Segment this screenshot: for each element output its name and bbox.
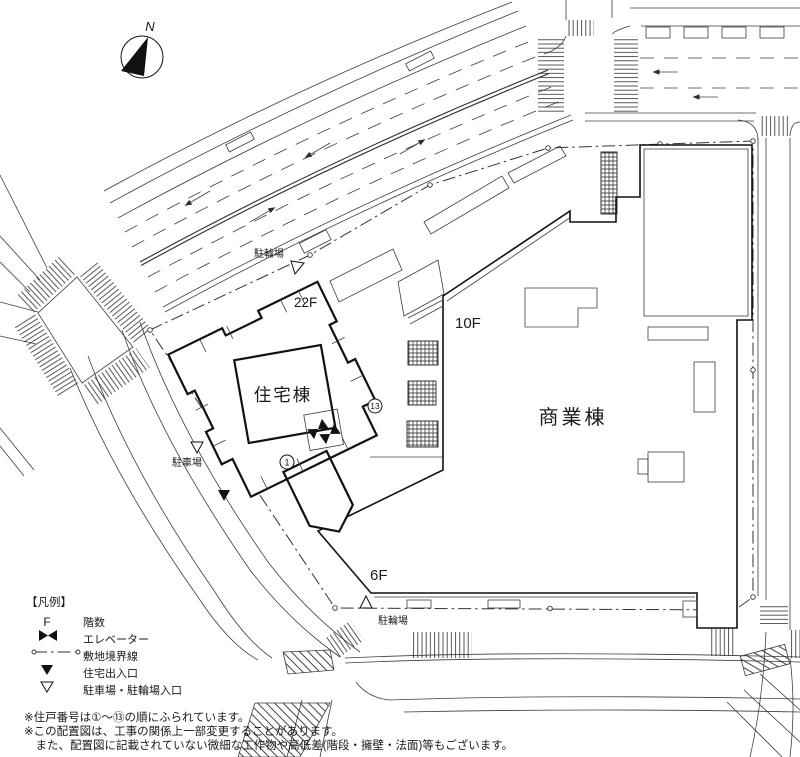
residential-floors-label: 22F <box>294 295 317 310</box>
lane-arrow <box>250 208 274 222</box>
north-arrow-icon: N <box>121 19 163 78</box>
svg-text:駐車場・駐輪場入口: 駐車場・駐輪場入口 <box>83 683 182 697</box>
site-plan-page: 1 13 22F 住宅棟 10F 商業棟 6F 駐輪場 駐輪場 駐車場 N 【凡… <box>0 0 800 757</box>
filled-triangle-icon <box>41 665 53 675</box>
roof-structure <box>683 601 697 617</box>
sidewalk-planter <box>407 600 431 608</box>
bicycle-parking-north-label: 駐輪場 <box>254 247 284 260</box>
sidewalk-bump <box>406 51 435 71</box>
sidewalk-planter <box>488 600 520 608</box>
svg-text:13: 13 <box>370 401 380 411</box>
crosswalk-hatch <box>788 630 800 658</box>
parking-stall <box>684 27 708 38</box>
legend: 【凡例】 F 階数 エレベーター 敷地境界線 住宅出入口 駐車場・駐輪場入口 <box>26 595 182 697</box>
svg-text:エレベーター: エレベーター <box>83 633 149 646</box>
parking-stall <box>722 27 746 38</box>
crosswalk-hatch <box>760 604 788 624</box>
legend-row-elevator: エレベーター <box>39 630 149 646</box>
site-plan-drawing: 1 13 22F 住宅棟 10F 商業棟 6F 駐輪場 駐輪場 駐車場 N 【凡… <box>0 0 800 757</box>
lane-arrow <box>400 140 424 154</box>
svg-text:1: 1 <box>284 458 289 468</box>
residential-entrance-icon <box>218 490 230 501</box>
west-intersection <box>0 175 153 406</box>
note-line-2: ※この配置図は、工事の関係上一部変更することがあります。 <box>24 724 343 738</box>
bicycle-entrance-north-icon <box>291 261 304 274</box>
crosswalk-hatch <box>710 628 734 656</box>
unit-1-marker: 1 <box>280 455 294 469</box>
svg-text:敷地境界線: 敷地境界線 <box>83 649 138 663</box>
lane-arrow <box>306 143 330 157</box>
parking-stall <box>646 27 670 38</box>
commercial-outline <box>318 145 752 628</box>
legend-row-boundary: 敷地境界線 <box>32 649 138 663</box>
floors-symbol: F <box>43 615 50 629</box>
northeast-road <box>538 0 800 121</box>
bicycle-entrance-south-icon <box>360 596 372 608</box>
commercial-building <box>318 145 752 628</box>
svg-text:N: N <box>145 19 155 34</box>
legend-row-floors: F 階数 <box>43 615 105 629</box>
legend-row-residential-entrance: 住宅出入口 <box>41 665 138 680</box>
parking-stall <box>760 27 784 38</box>
svg-text:階数: 階数 <box>83 615 105 629</box>
commercial-floors-low-label: 6F <box>370 567 388 584</box>
residential-name-label: 住宅棟 <box>254 385 313 405</box>
commercial-name-label: 商業棟 <box>539 406 608 429</box>
hatched-island <box>283 650 334 674</box>
legend-row-parking-entrance: 駐車場・駐輪場入口 <box>41 682 182 697</box>
bicycle-shelter <box>299 230 331 253</box>
elevator-icon <box>39 630 57 641</box>
legend-title: 【凡例】 <box>26 595 72 609</box>
note-line-3: また、配置図に記載されていない微細な工作物や高低差(階段・擁壁・法面)等もござい… <box>24 738 513 752</box>
crosswalk-hatch <box>614 36 638 114</box>
crosswalk-hatch <box>538 38 564 112</box>
commercial-floors-main-label: 10F <box>455 315 481 332</box>
svg-text:住宅出入口: 住宅出入口 <box>83 666 138 680</box>
unit-13-marker: 13 <box>368 399 382 413</box>
bicycle-parking-south-label: 駐輪場 <box>378 614 408 627</box>
crosswalk-hatch <box>566 20 594 36</box>
car-parking-label: 駐車場 <box>172 456 202 469</box>
car-park-entrance-icon <box>191 442 203 453</box>
crosswalk-hatch <box>326 621 364 658</box>
open-triangle-icon <box>41 682 53 692</box>
crosswalk-hatch <box>410 632 472 658</box>
crosswalk-hatch <box>760 116 790 136</box>
note-line-1: ※住戸番号は①〜⑬の順にふられています。 <box>24 710 249 724</box>
